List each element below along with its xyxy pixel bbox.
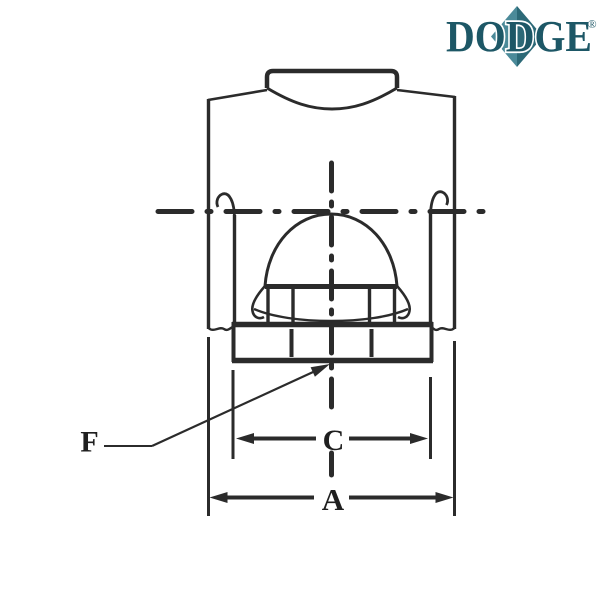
dim-c-arrow-left (236, 433, 254, 444)
leader-f-diagonal (152, 367, 324, 446)
drawing-canvas: DODGE ® (0, 0, 600, 600)
label-c: C (323, 424, 345, 457)
body-top-edge-left (208, 90, 267, 100)
top-cap-saddle-curve (267, 88, 397, 109)
break-squiggle-left (209, 326, 235, 330)
dodge-logo: DODGE ® (446, 6, 597, 67)
logo-wordmark: DODGE (446, 12, 592, 61)
label-a: A (322, 482, 345, 517)
leader-f-arrowhead (311, 364, 330, 377)
dim-a-arrow-left (210, 492, 228, 503)
bell-curl-left (217, 194, 235, 219)
break-squiggle-right (431, 326, 455, 330)
label-f: F (80, 426, 98, 459)
centerlines (158, 163, 483, 475)
body-top-edge-right (397, 90, 455, 97)
hanger-bearing-drawing: DODGE ® (0, 0, 600, 600)
dim-c-arrow-right (410, 433, 428, 444)
top-cap-outline (267, 71, 397, 88)
registered-trademark-symbol: ® (587, 17, 596, 31)
linework (104, 71, 483, 516)
dim-a-arrow-right (436, 492, 454, 503)
